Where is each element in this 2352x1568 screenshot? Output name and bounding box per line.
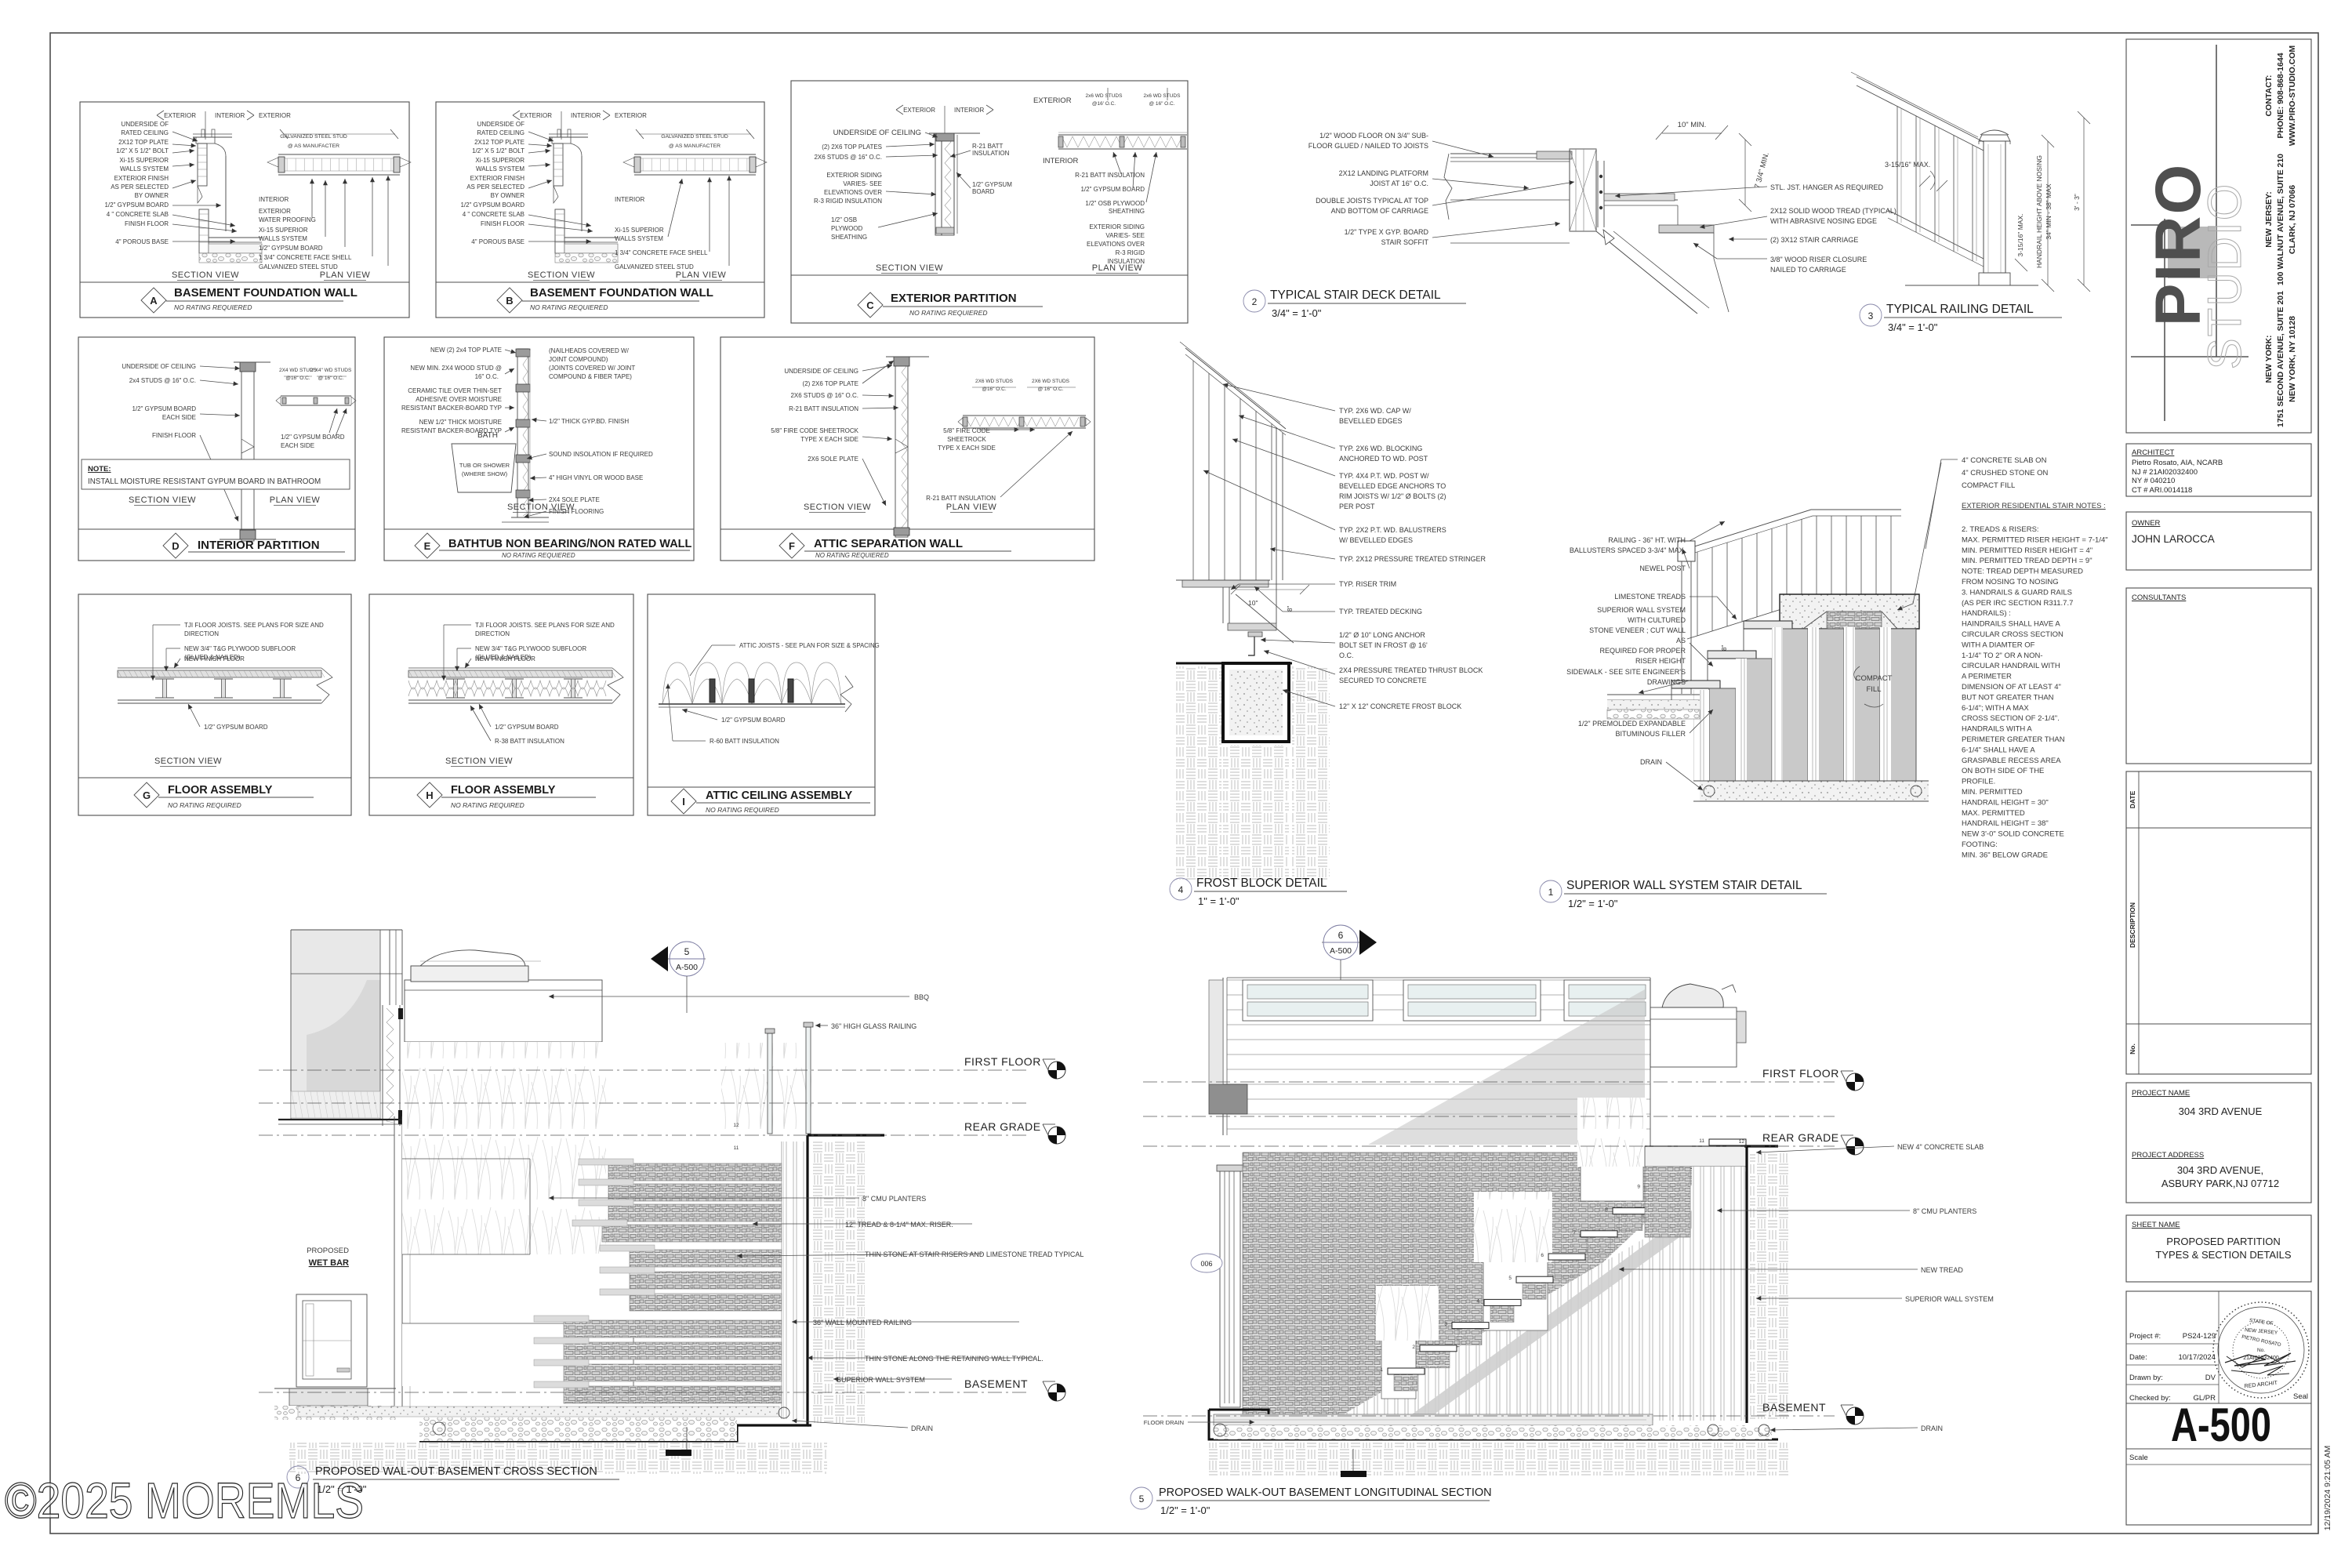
- svg-text:(2) 3X12 STAIR CARRIAGE: (2) 3X12 STAIR CARRIAGE: [1770, 236, 1858, 244]
- svg-text:8" CMU PLANTERS: 8" CMU PLANTERS: [862, 1195, 926, 1203]
- svg-text:EXTERIOR: EXTERIOR: [259, 208, 291, 215]
- svg-text:RESISTANT BACKER-BOARD TYP: RESISTANT BACKER-BOARD TYP: [401, 427, 502, 434]
- svg-text:EXTERIOR: EXTERIOR: [1033, 96, 1072, 105]
- svg-text:BBQ: BBQ: [914, 993, 929, 1001]
- svg-text:1-1/4" TO 2" OR A NON-: 1-1/4" TO 2" OR A NON-: [1962, 652, 2043, 660]
- svg-text:4" CRUSHED STONE ON: 4" CRUSHED STONE ON: [1962, 469, 2048, 477]
- svg-text:EXTERIOR PARTITION: EXTERIOR PARTITION: [891, 292, 1017, 305]
- svg-text:3/4" = 1'-0": 3/4" = 1'-0": [1272, 307, 1322, 319]
- svg-text:REAR GRADE: REAR GRADE: [964, 1120, 1041, 1133]
- svg-text:A-500: A-500: [676, 963, 698, 972]
- svg-text:4: 4: [1178, 884, 1184, 895]
- svg-text:NO RATING REQUIERED: NO RATING REQUIERED: [502, 552, 575, 559]
- svg-text:FLOOR GLUED / NAILED TO JOISTS: FLOOR GLUED / NAILED TO JOISTS: [1308, 142, 1428, 150]
- svg-text:10/17/2024: 10/17/2024: [2178, 1353, 2216, 1362]
- svg-text:3/8" WOOD RISER CLOSURE: 3/8" WOOD RISER CLOSURE: [1770, 256, 1867, 263]
- svg-text:DIMENSION OF AT LEAST 4": DIMENSION OF AT LEAST 4": [1962, 683, 2061, 691]
- svg-text:NO RATING REQUIRED: NO RATING REQUIRED: [168, 801, 241, 809]
- svg-text:FLOOR ASSEMBLY: FLOOR ASSEMBLY: [168, 784, 273, 797]
- svg-text:NEW 3'-0" SOLID CONCRETE: NEW 3'-0" SOLID CONCRETE: [1962, 830, 2064, 839]
- svg-text:EXTERIOR: EXTERIOR: [903, 107, 935, 114]
- svg-text:BASEMENT: BASEMENT: [964, 1377, 1028, 1390]
- svg-text:PER POST: PER POST: [1339, 503, 1375, 510]
- svg-text:CONTACT:: CONTACT:: [2264, 75, 2274, 117]
- svg-text:1/2" GYPSUM BOARD: 1/2" GYPSUM BOARD: [1080, 186, 1145, 193]
- svg-text:FIRST FLOOR: FIRST FLOOR: [1762, 1067, 1839, 1080]
- svg-text:36" WALL MOUNTED RAILING: 36" WALL MOUNTED RAILING: [813, 1319, 912, 1327]
- svg-text:NO RATING REQUIERED: NO RATING REQUIERED: [909, 309, 988, 317]
- svg-text:34" MIN - 38" MAX: 34" MIN - 38" MAX: [2045, 183, 2053, 240]
- svg-text:INSULATION: INSULATION: [972, 150, 1010, 157]
- svg-text:INTERIOR: INTERIOR: [215, 112, 245, 119]
- svg-text:1/2" TYPE X GYP. BOARD: 1/2" TYPE X GYP. BOARD: [1345, 228, 1429, 236]
- svg-text:BATHTUB NON BEARING/NON RATED: BATHTUB NON BEARING/NON RATED WALL: [448, 538, 692, 550]
- svg-text:RISER HEIGHT: RISER HEIGHT: [1635, 657, 1686, 665]
- svg-text:INTERIOR PARTITION: INTERIOR PARTITION: [198, 539, 320, 552]
- svg-text:BASEMENT: BASEMENT: [1762, 1401, 1826, 1414]
- svg-text:100 WALNUT AVENUE, SUITE 210: 100 WALNUT AVENUE, SUITE 210: [2276, 154, 2285, 285]
- svg-text:JOHN LAROCCA: JOHN LAROCCA: [2132, 533, 2215, 545]
- svg-text:GALVANIZED STEEL STUD: GALVANIZED STEEL STUD: [661, 134, 728, 140]
- svg-text:PLAN VIEW: PLAN VIEW: [270, 495, 321, 505]
- svg-text:SECTION VIEW: SECTION VIEW: [804, 503, 871, 512]
- svg-text:1/2" GYPSUM BOARD: 1/2" GYPSUM BOARD: [132, 405, 196, 412]
- svg-text:@ 16" O.C.: @ 16" O.C.: [1037, 387, 1063, 392]
- svg-text:AS PER SELECTED: AS PER SELECTED: [111, 183, 169, 191]
- svg-text:FINISH FLOOR: FINISH FLOOR: [125, 220, 169, 227]
- svg-text:SECTION VIEW: SECTION VIEW: [154, 757, 222, 766]
- svg-text:A PERIMETER: A PERIMETER: [1962, 673, 2012, 681]
- svg-text:PERIMETER GREATER THAN: PERIMETER GREATER THAN: [1962, 735, 2065, 744]
- svg-text:TYP. RISER TRIM: TYP. RISER TRIM: [1339, 580, 1396, 588]
- svg-text:1/2" THICK GYP.BD. FINISH: 1/2" THICK GYP.BD. FINISH: [549, 418, 629, 425]
- svg-text:1: 1: [1548, 887, 1554, 898]
- svg-text:WALLS SYSTEM: WALLS SYSTEM: [615, 235, 663, 242]
- svg-text:WALLS SYSTEM: WALLS SYSTEM: [120, 165, 169, 172]
- svg-text:NEW YORK, NY 10128: NEW YORK, NY 10128: [2288, 316, 2297, 402]
- svg-text:SECTION VIEW: SECTION VIEW: [172, 270, 239, 280]
- svg-text:TYP. 2X6 WD. CAP W/: TYP. 2X6 WD. CAP W/: [1339, 407, 1411, 415]
- svg-text:TYPICAL RAILING DETAIL: TYPICAL RAILING DETAIL: [1886, 303, 2034, 316]
- svg-text:FLOOR DRAIN: FLOOR DRAIN: [1144, 1419, 1184, 1426]
- svg-text:ATTIC JOISTS - SEE PLAN FOR SI: ATTIC JOISTS - SEE PLAN FOR SIZE & SPACI…: [739, 642, 880, 649]
- svg-text:STUDIO: STUDIO: [2198, 183, 2251, 370]
- svg-text:SUPERIOR WALL SYSTEM: SUPERIOR WALL SYSTEM: [1597, 606, 1686, 614]
- svg-text:2: 2: [1412, 1345, 1415, 1350]
- svg-text:ELEVATIONS OVER: ELEVATIONS OVER: [1087, 241, 1145, 248]
- svg-text:DIRECTION: DIRECTION: [184, 630, 219, 637]
- svg-text:Xi-15 SUPERIOR: Xi-15 SUPERIOR: [615, 227, 664, 234]
- svg-text:2X6 WD STUDS: 2X6 WD STUDS: [1032, 379, 1070, 384]
- svg-text:DRAIN: DRAIN: [1640, 758, 1662, 766]
- svg-text:EXTERIOR SIDING: EXTERIOR SIDING: [826, 172, 882, 179]
- svg-text:1/2" GYPSUM BOARD: 1/2" GYPSUM BOARD: [104, 201, 169, 209]
- svg-text:@16' O.C.: @16' O.C.: [1092, 101, 1116, 107]
- svg-text:TYPES & SECTION DETAILS: TYPES & SECTION DETAILS: [2155, 1249, 2291, 1261]
- svg-text:R-3 RIGID: R-3 RIGID: [1116, 249, 1145, 256]
- svg-text:EXTERIOR: EXTERIOR: [164, 112, 196, 119]
- svg-text:E: E: [424, 540, 431, 552]
- svg-text:SIDEWALK - SEE SITE ENGINEER'S: SIDEWALK - SEE SITE ENGINEER'S: [1566, 668, 1686, 676]
- svg-text:Project #:: Project #:: [2129, 1332, 2161, 1341]
- svg-text:DATE: DATE: [2129, 790, 2136, 808]
- svg-text:PLAN VIEW: PLAN VIEW: [676, 270, 727, 280]
- svg-text:©2025 MOREMLS: ©2025 MOREMLS: [5, 1472, 364, 1529]
- svg-text:2X12 TOP PLATE: 2X12 TOP PLATE: [474, 139, 524, 146]
- svg-text:W/ BEVELLED EDGES: W/ BEVELLED EDGES: [1339, 536, 1413, 544]
- svg-text:DRAIN: DRAIN: [911, 1425, 933, 1432]
- svg-text:BY OWNER: BY OWNER: [491, 192, 525, 199]
- svg-text:MIN. PERMITTED TREAD DEPTH = 9: MIN. PERMITTED TREAD DEPTH = 9": [1962, 557, 2092, 565]
- svg-text:ASBURY PARK,NJ 07712: ASBURY PARK,NJ 07712: [2161, 1178, 2279, 1189]
- svg-text:12: 12: [733, 1123, 739, 1128]
- svg-text:1/2" GYPSUM BOARD: 1/2" GYPSUM BOARD: [460, 201, 524, 209]
- svg-text:R-21 BATT: R-21 BATT: [972, 143, 1004, 150]
- svg-text:TYPE X EACH SIDE: TYPE X EACH SIDE: [800, 436, 858, 443]
- svg-text:1/2" OSB: 1/2" OSB: [831, 216, 857, 223]
- svg-text:RATED CEILING: RATED CEILING: [477, 129, 524, 136]
- svg-text:FILL: FILL: [1866, 685, 1881, 694]
- svg-text:1 3/4" CONCRETE FACE SHELL: 1 3/4" CONCRETE FACE SHELL: [615, 249, 708, 256]
- svg-text:16" O.C.: 16" O.C.: [475, 373, 499, 380]
- svg-text:DRAWINGS: DRAWINGS: [1647, 678, 1686, 686]
- svg-text:ATTIC CEILING ASSEMBLY: ATTIC CEILING ASSEMBLY: [706, 789, 852, 802]
- svg-text:BUT NOT GREATER THAN: BUT NOT GREATER THAN: [1962, 693, 2054, 702]
- svg-text:8": 8": [1721, 645, 1728, 651]
- svg-text:1/2" = 1'-0": 1/2" = 1'-0": [1568, 898, 1618, 909]
- svg-text:WWW.PIRO-STUDIO.COM: WWW.PIRO-STUDIO.COM: [2288, 45, 2297, 147]
- svg-text:EXTERIOR FINISH: EXTERIOR FINISH: [114, 175, 169, 182]
- svg-text:DOUBLE JOISTS TYPICAL AT TOP: DOUBLE JOISTS TYPICAL AT TOP: [1316, 197, 1428, 205]
- svg-text:A-500: A-500: [1330, 946, 1352, 956]
- svg-text:MAX. PERMITTED: MAX. PERMITTED: [1962, 809, 2025, 818]
- svg-text:3-15/16" MAX.: 3-15/16" MAX.: [2016, 214, 2024, 257]
- svg-text:12" TREAD & 8-1/4" MAX. RISER.: 12" TREAD & 8-1/4" MAX. RISER.: [845, 1221, 953, 1229]
- svg-text:R-21 BATT INSULATION: R-21 BATT INSULATION: [926, 495, 996, 502]
- svg-text:1751 SECOND AVENUE, SUITE 201: 1751 SECOND AVENUE, SUITE 201: [2276, 291, 2285, 427]
- svg-text:O.C.: O.C.: [1339, 652, 1354, 659]
- svg-text:INTERIOR: INTERIOR: [1043, 157, 1079, 165]
- svg-text:R-21 BATT INSULATION: R-21 BATT INSULATION: [789, 405, 858, 412]
- svg-text:6-1/4"; WITH A MAX: 6-1/4"; WITH A MAX: [1962, 704, 2029, 713]
- svg-text:6-1/4" SHALL HAVE A: 6-1/4" SHALL HAVE A: [1962, 746, 2035, 754]
- svg-text:2X6 WD STUDS: 2X6 WD STUDS: [975, 379, 1014, 384]
- svg-text:4: 4: [1476, 1298, 1479, 1304]
- svg-text:No.: No.: [2129, 1044, 2136, 1054]
- svg-text:11: 11: [1699, 1138, 1704, 1144]
- svg-text:(JOINTS COVERED W/ JOINT: (JOINTS COVERED W/ JOINT: [549, 365, 635, 372]
- svg-text:SECTION VIEW: SECTION VIEW: [876, 263, 943, 273]
- svg-text:G: G: [143, 789, 151, 801]
- svg-text:INSTALL MOISTURE RESISTANT GYP: INSTALL MOISTURE RESISTANT GYPUM BOARD I…: [88, 477, 321, 486]
- svg-text:DV: DV: [2205, 1374, 2216, 1382]
- svg-text:SECURED TO CONCRETE: SECURED TO CONCRETE: [1339, 677, 1427, 684]
- svg-text:D: D: [172, 540, 179, 552]
- svg-text:1/2" = 1'-0": 1/2" = 1'-0": [1160, 1504, 1210, 1516]
- svg-text:10" MIN.: 10" MIN.: [1678, 121, 1707, 129]
- svg-text:11: 11: [734, 1145, 739, 1151]
- svg-text:UNDERSIDE OF CEILING: UNDERSIDE OF CEILING: [122, 363, 196, 370]
- svg-text:SHEET NAME: SHEET NAME: [2132, 1221, 2180, 1229]
- svg-text:INTERIOR: INTERIOR: [259, 196, 289, 203]
- svg-text:12/19/2024 9:21:05 AM: 12/19/2024 9:21:05 AM: [2323, 1446, 2332, 1531]
- svg-text:ELEVATIONS OVER: ELEVATIONS OVER: [824, 189, 882, 196]
- svg-text:A-500: A-500: [2171, 1399, 2271, 1451]
- svg-text:VARIES- SEE: VARIES- SEE: [843, 180, 882, 187]
- svg-text:SECTION VIEW: SECTION VIEW: [129, 495, 196, 505]
- svg-text:BY OWNER: BY OWNER: [135, 192, 169, 199]
- svg-text:NEW 3/4" T&G PLYWOOD SUBFLOOR: NEW 3/4" T&G PLYWOOD SUBFLOOR: [475, 645, 586, 652]
- svg-text:4" POROUS BASE: 4" POROUS BASE: [115, 238, 169, 245]
- svg-text:ANCHORED TO WD. POST: ANCHORED TO WD. POST: [1339, 455, 1428, 463]
- svg-text:NEW 3/4" T&G PLYWOOD SUBFLOOR: NEW 3/4" T&G PLYWOOD SUBFLOOR: [184, 645, 296, 652]
- svg-text:FROM NOSING TO NOSING: FROM NOSING TO NOSING: [1962, 578, 2059, 586]
- svg-text:PS24-129: PS24-129: [2183, 1332, 2216, 1341]
- svg-text:DESCRIPTION: DESCRIPTION: [2129, 902, 2136, 948]
- svg-text:NEW FINISH FLOOR: NEW FINISH FLOOR: [184, 655, 245, 662]
- svg-text:@16" O.C.: @16" O.C.: [982, 387, 1006, 392]
- svg-text:Date:: Date:: [2129, 1353, 2147, 1362]
- svg-text:STONE VENEER ; CUT WALL: STONE VENEER ; CUT WALL: [1589, 626, 1686, 634]
- svg-text:8: 8: [1605, 1207, 1608, 1213]
- svg-text:INTERIOR: INTERIOR: [615, 196, 644, 203]
- svg-text:FINISH FLOOR: FINISH FLOOR: [481, 220, 524, 227]
- svg-text:JOIST AT 16" O.C.: JOIST AT 16" O.C.: [1370, 180, 1428, 187]
- svg-text:1/2" OSB PLYWOOD: 1/2" OSB PLYWOOD: [1085, 200, 1145, 207]
- svg-text:SECTION VIEW: SECTION VIEW: [507, 503, 575, 512]
- svg-text:EXTERIOR SIDING: EXTERIOR SIDING: [1089, 223, 1145, 230]
- svg-text:SECTION VIEW: SECTION VIEW: [445, 757, 513, 766]
- svg-text:JOINT COMPOUND): JOINT COMPOUND): [549, 356, 608, 363]
- svg-text:WALLS SYSTEM: WALLS SYSTEM: [476, 165, 524, 172]
- svg-text:CROSS SECTION OF 2-1/4".: CROSS SECTION OF 2-1/4".: [1962, 714, 2060, 723]
- svg-text:CT # ARI.0014118: CT # ARI.0014118: [2132, 486, 2192, 495]
- svg-text:FIRST FLOOR: FIRST FLOOR: [964, 1055, 1041, 1068]
- svg-text:PROJECT ADDRESS: PROJECT ADDRESS: [2132, 1151, 2204, 1160]
- svg-text:9: 9: [1637, 1184, 1640, 1189]
- svg-text:RESISTANT BACKER-BOARD TYP: RESISTANT BACKER-BOARD TYP: [401, 405, 502, 412]
- svg-text:3: 3: [1868, 310, 1874, 321]
- svg-text:Scale: Scale: [2129, 1454, 2148, 1462]
- svg-text:CONSULTANTS: CONSULTANTS: [2132, 593, 2186, 602]
- svg-text:SOUND INSOLATION IF REQUIRED: SOUND INSOLATION IF REQUIRED: [549, 451, 653, 458]
- svg-text:BOARD: BOARD: [972, 188, 995, 195]
- svg-text:EXTERIOR: EXTERIOR: [520, 112, 552, 119]
- svg-text:2X4 PRESSURE TREATED THRUST BL: 2X4 PRESSURE TREATED THRUST BLOCK: [1339, 666, 1483, 674]
- svg-text:WITH CULTURED: WITH CULTURED: [1628, 616, 1686, 624]
- svg-text:2. TREADS & RISERS:: 2. TREADS & RISERS:: [1962, 525, 2039, 534]
- svg-text:TYP. 2X12 PRESSURE TREATED STR: TYP. 2X12 PRESSURE TREATED STRINGER: [1339, 555, 1486, 563]
- svg-text:1/2" PREMOLDED EXPANDABLE: 1/2" PREMOLDED EXPANDABLE: [1578, 720, 1686, 728]
- svg-text:5: 5: [1139, 1494, 1145, 1504]
- svg-text:PROFILE.: PROFILE.: [1962, 778, 1995, 786]
- svg-text:3: 3: [1444, 1322, 1447, 1327]
- svg-text:2X12 TOP PLATE: 2X12 TOP PLATE: [118, 139, 169, 146]
- svg-text:RATED CEILING: RATED CEILING: [121, 129, 169, 136]
- svg-text:SHEETROCK: SHEETROCK: [947, 436, 986, 443]
- svg-text:BASEMENT FOUNDATION WALL: BASEMENT FOUNDATION WALL: [174, 286, 358, 299]
- svg-text:I: I: [682, 796, 685, 808]
- svg-text:1/2" GYPSUM BOARD: 1/2" GYPSUM BOARD: [204, 724, 268, 731]
- svg-text:1" = 1'-0": 1" = 1'-0": [1198, 895, 1240, 907]
- svg-text:PLAN VIEW: PLAN VIEW: [946, 503, 997, 512]
- svg-text:@ AS MANUFACTER: @ AS MANUFACTER: [288, 143, 339, 149]
- svg-text:HANDRAIL HEIGHT = 30": HANDRAIL HEIGHT = 30": [1962, 798, 2049, 807]
- svg-text:EXTERIOR RESIDENTIAL STAIR NOT: EXTERIOR RESIDENTIAL STAIR NOTES :: [1962, 502, 2106, 510]
- svg-text:12" X 12" CONCRETE FROST BLOCK: 12" X 12" CONCRETE FROST BLOCK: [1339, 702, 1461, 710]
- svg-text:NO RATING REQUIERED: NO RATING REQUIERED: [815, 552, 889, 559]
- svg-text:ARCHITECT: ARCHITECT: [2132, 448, 2175, 457]
- svg-text:PROJECT NAME: PROJECT NAME: [2132, 1089, 2190, 1098]
- svg-text:R-60 BATT INSULATION: R-60 BATT INSULATION: [710, 738, 779, 745]
- svg-text:UNDERSIDE OF CEILING: UNDERSIDE OF CEILING: [784, 368, 858, 375]
- svg-text:(2) 2X6 TOP PLATES: (2) 2X6 TOP PLATES: [822, 143, 882, 151]
- svg-text:FLOOR ASSEMBLY: FLOOR ASSEMBLY: [451, 784, 556, 797]
- svg-text:NEW FINISH FLOOR: NEW FINISH FLOOR: [475, 655, 535, 662]
- svg-text:NEW 1/2" THICK MOISTURE: NEW 1/2" THICK MOISTURE: [419, 419, 502, 426]
- svg-text:304 3RD AVENUE,: 304 3RD AVENUE,: [2177, 1164, 2263, 1176]
- svg-text:6: 6: [1541, 1253, 1544, 1258]
- svg-text:GRASPABLE RECESS AREA: GRASPABLE RECESS AREA: [1962, 757, 2061, 765]
- svg-text:PLYWOOD: PLYWOOD: [831, 225, 863, 232]
- svg-text:TYPE X EACH SIDE: TYPE X EACH SIDE: [938, 445, 996, 452]
- svg-text:CIRCULAR CROSS SECTION: CIRCULAR CROSS SECTION: [1962, 630, 2063, 639]
- svg-text:4" HIGH VINYL OR WOOD BASE: 4" HIGH VINYL OR WOOD BASE: [549, 474, 643, 481]
- svg-text:MIN. 36" BELOW GRADE: MIN. 36" BELOW GRADE: [1962, 851, 2048, 859]
- svg-text:UNDERSIDE OF CEILING: UNDERSIDE OF CEILING: [833, 129, 921, 137]
- svg-text:AND BOTTOM OF CARRIAGE: AND BOTTOM OF CARRIAGE: [1331, 207, 1428, 215]
- svg-text:GALVANIZED STEEL STUD: GALVANIZED STEEL STUD: [280, 134, 347, 140]
- svg-text:WITH A DIAMTER OF: WITH A DIAMTER OF: [1962, 641, 2035, 649]
- svg-text:(WHERE SHOW): (WHERE SHOW): [462, 470, 508, 477]
- svg-text:@ 16" O.C.: @ 16" O.C.: [318, 376, 343, 381]
- svg-text:RAILING - 36" HT. WITH: RAILING - 36" HT. WITH: [1608, 536, 1686, 544]
- svg-text:1/2" WOOD FLOOR ON 3/4" SUB-: 1/2" WOOD FLOOR ON 3/4" SUB-: [1319, 132, 1428, 140]
- svg-text:EACH SIDE: EACH SIDE: [162, 414, 196, 421]
- svg-text:8": 8": [1287, 606, 1294, 612]
- svg-text:CERAMIC TILE OVER THIN-SET: CERAMIC TILE OVER THIN-SET: [408, 387, 502, 394]
- svg-text:1/2" X 5 1/2" BOLT: 1/2" X 5 1/2" BOLT: [116, 147, 169, 154]
- svg-text:SUPERIOR WALL SYSTEM STAIR DET: SUPERIOR WALL SYSTEM STAIR DETAIL: [1566, 879, 1802, 892]
- svg-text:NY # 040210: NY # 040210: [2132, 477, 2175, 485]
- svg-text:REQUIRED FOR PROPER: REQUIRED FOR PROPER: [1599, 647, 1686, 655]
- svg-text:HANDRAIL HEIGHT = 38": HANDRAIL HEIGHT = 38": [1962, 819, 2049, 828]
- svg-text:2X6 STUDS @ 16" O.C.: 2X6 STUDS @ 16" O.C.: [790, 392, 858, 399]
- svg-text:1: 1: [1380, 1367, 1383, 1373]
- svg-text:HANDRAILS) :: HANDRAILS) :: [1962, 609, 2011, 618]
- svg-text:EXTERIOR: EXTERIOR: [615, 112, 647, 119]
- svg-text:@ 16" O.C.: @ 16" O.C.: [1149, 101, 1174, 107]
- svg-text:REAR GRADE: REAR GRADE: [1762, 1131, 1839, 1144]
- svg-text:1/2" GYPSUM BOARD: 1/2" GYPSUM BOARD: [495, 724, 559, 731]
- svg-text:ADHESIVE OVER MOISTURE: ADHESIVE OVER MOISTURE: [416, 396, 502, 403]
- svg-text:STL. JST. HANGER AS REQUIRED: STL. JST. HANGER AS REQUIRED: [1770, 183, 1884, 191]
- svg-text:HAINDRAILS SHALL HAVE A: HAINDRAILS SHALL HAVE A: [1962, 620, 2060, 629]
- svg-text:1/2" GYPSUM BOARD: 1/2" GYPSUM BOARD: [281, 434, 345, 441]
- svg-text:7: 7: [1573, 1230, 1576, 1236]
- svg-text:NEW TREAD: NEW TREAD: [1921, 1266, 1963, 1274]
- svg-text:12: 12: [1739, 1139, 1745, 1145]
- svg-text:SHEATHING: SHEATHING: [1109, 208, 1145, 215]
- svg-text:RIM JOISTS W/ 1/2" Ø BOLTS (2): RIM JOISTS W/ 1/2" Ø BOLTS (2): [1339, 492, 1446, 500]
- svg-text:ON BOTH SIDE OF THE: ON BOTH SIDE OF THE: [1962, 767, 2044, 775]
- svg-text:HANDRAILS WITH A: HANDRAILS WITH A: [1962, 725, 2032, 734]
- svg-text:WITH ABRASIVE NOSING EDGE: WITH ABRASIVE NOSING EDGE: [1770, 217, 1877, 225]
- svg-text:COMPACT: COMPACT: [1856, 674, 1893, 683]
- svg-text:NEW JERSEY:: NEW JERSEY:: [2264, 191, 2274, 248]
- svg-text:(AS PER IRC SECTION R311.7.7: (AS PER IRC SECTION R311.7.7: [1962, 599, 2073, 608]
- svg-text:3. HANDRAILS & GUARD RAILS: 3. HANDRAILS & GUARD RAILS: [1962, 588, 2072, 597]
- svg-text:304 3RD AVENUE: 304 3RD AVENUE: [2179, 1105, 2263, 1117]
- svg-text:6: 6: [1338, 930, 1344, 941]
- svg-text:EXTERIOR FINISH: EXTERIOR FINISH: [470, 175, 525, 182]
- svg-text:5/8" FIRE CODE SHEETROCK: 5/8" FIRE CODE SHEETROCK: [771, 427, 858, 434]
- svg-text:MIN. PERMITTED: MIN. PERMITTED: [1962, 788, 2023, 797]
- svg-text:TYPICAL STAIR DECK DETAIL: TYPICAL STAIR DECK DETAIL: [1270, 289, 1441, 302]
- svg-text:5: 5: [684, 946, 690, 957]
- svg-text:R-38 BATT INSULATION: R-38 BATT INSULATION: [495, 738, 564, 745]
- svg-text:OWNER: OWNER: [2132, 519, 2161, 528]
- svg-text:NO RATING REQUIERED: NO RATING REQUIERED: [174, 303, 252, 311]
- svg-text:WALLS SYSTEM: WALLS SYSTEM: [259, 235, 307, 242]
- svg-text:GALVANIZED STEEL STUD: GALVANIZED STEEL STUD: [259, 263, 338, 270]
- svg-text:NOTE: TREAD DEPTH MEASURED: NOTE: TREAD DEPTH MEASURED: [1962, 568, 2083, 576]
- svg-text:UNDERSIDE OF: UNDERSIDE OF: [477, 121, 525, 128]
- svg-text:5: 5: [1508, 1276, 1512, 1281]
- svg-text:INTERIOR: INTERIOR: [954, 107, 984, 114]
- svg-text:R-21 BATT INSULATION: R-21 BATT INSULATION: [1075, 172, 1145, 179]
- svg-text:1/2" GYPSUM BOARD: 1/2" GYPSUM BOARD: [259, 245, 323, 252]
- svg-text:CLARK, NJ 07066: CLARK, NJ 07066: [2288, 185, 2297, 254]
- svg-text:BOLT SET IN FROST @ 16': BOLT SET IN FROST @ 16': [1339, 641, 1428, 649]
- svg-text:1/2" X 5 1/2" BOLT: 1/2" X 5 1/2" BOLT: [472, 147, 524, 154]
- svg-text:TYP. 2X2 P.T. WD. BALUSTRERS: TYP. 2X2 P.T. WD. BALUSTRERS: [1339, 526, 1446, 534]
- svg-text:2X12 SOLID WOOD TREAD (TYPICAL: 2X12 SOLID WOOD TREAD (TYPICAL): [1770, 207, 1896, 215]
- svg-text:10": 10": [1248, 599, 1258, 607]
- svg-text:2x6 WD STUDS: 2x6 WD STUDS: [1144, 93, 1181, 99]
- svg-text:4 " CONCRETE SLAB: 4 " CONCRETE SLAB: [463, 211, 524, 218]
- svg-text:TJI FLOOR JOISTS. SEE PLANS FO: TJI FLOOR JOISTS. SEE PLANS FOR SIZE AND: [475, 622, 615, 629]
- svg-text:NO RATING REQUIRED: NO RATING REQUIRED: [706, 806, 779, 814]
- svg-text:CIRCULAR HANDRAIL WITH: CIRCULAR HANDRAIL WITH: [1962, 662, 2060, 670]
- svg-text:INTERIOR: INTERIOR: [571, 112, 601, 119]
- svg-text:No.: No.: [2257, 1348, 2265, 1353]
- svg-text:Xi-15 SUPERIOR: Xi-15 SUPERIOR: [259, 227, 308, 234]
- svg-text:COMPACT FILL: COMPACT FILL: [1962, 481, 2015, 490]
- svg-text:AS: AS: [1676, 637, 1686, 644]
- svg-text:BALLUSTERS SPACED 3-3/4" MAX.: BALLUSTERS SPACED 3-3/4" MAX.: [1570, 546, 1686, 554]
- svg-text:36" HIGH GLASS RAILING: 36" HIGH GLASS RAILING: [831, 1022, 916, 1030]
- svg-text:EXTERIOR: EXTERIOR: [259, 112, 291, 119]
- svg-text:STAIR SOFFIT: STAIR SOFFIT: [1381, 238, 1429, 246]
- svg-text:AS PER SELECTED: AS PER SELECTED: [466, 183, 524, 191]
- svg-text:Xi-15 SUPERIOR: Xi-15 SUPERIOR: [475, 157, 524, 164]
- svg-text:NOTE:: NOTE:: [88, 465, 111, 474]
- svg-text:(2) 2X6 TOP PLATE: (2) 2X6 TOP PLATE: [803, 380, 858, 387]
- svg-text:NEWEL POST: NEWEL POST: [1639, 564, 1686, 572]
- svg-text:@16" O.C.: @16" O.C.: [285, 376, 310, 381]
- svg-text:BASEMENT FOUNDATION WALL: BASEMENT FOUNDATION WALL: [530, 286, 713, 299]
- svg-text:EACH SIDE: EACH SIDE: [281, 442, 314, 449]
- svg-text:NEW YORK:: NEW YORK:: [2264, 335, 2274, 383]
- svg-text:F: F: [789, 540, 795, 552]
- svg-text:PROPOSED WALK-OUT BASEMENT LON: PROPOSED WALK-OUT BASEMENT LONGITUDINAL …: [1159, 1486, 1492, 1499]
- svg-text:DIRECTION: DIRECTION: [475, 630, 510, 637]
- svg-text:1/2" GYPSUM BOARD: 1/2" GYPSUM BOARD: [721, 717, 786, 724]
- svg-text:NO RATING REQUIERED: NO RATING REQUIERED: [530, 303, 608, 311]
- svg-text:UNDERSIDE OF: UNDERSIDE OF: [122, 121, 169, 128]
- svg-text:3' - 3": 3' - 3": [2073, 194, 2081, 211]
